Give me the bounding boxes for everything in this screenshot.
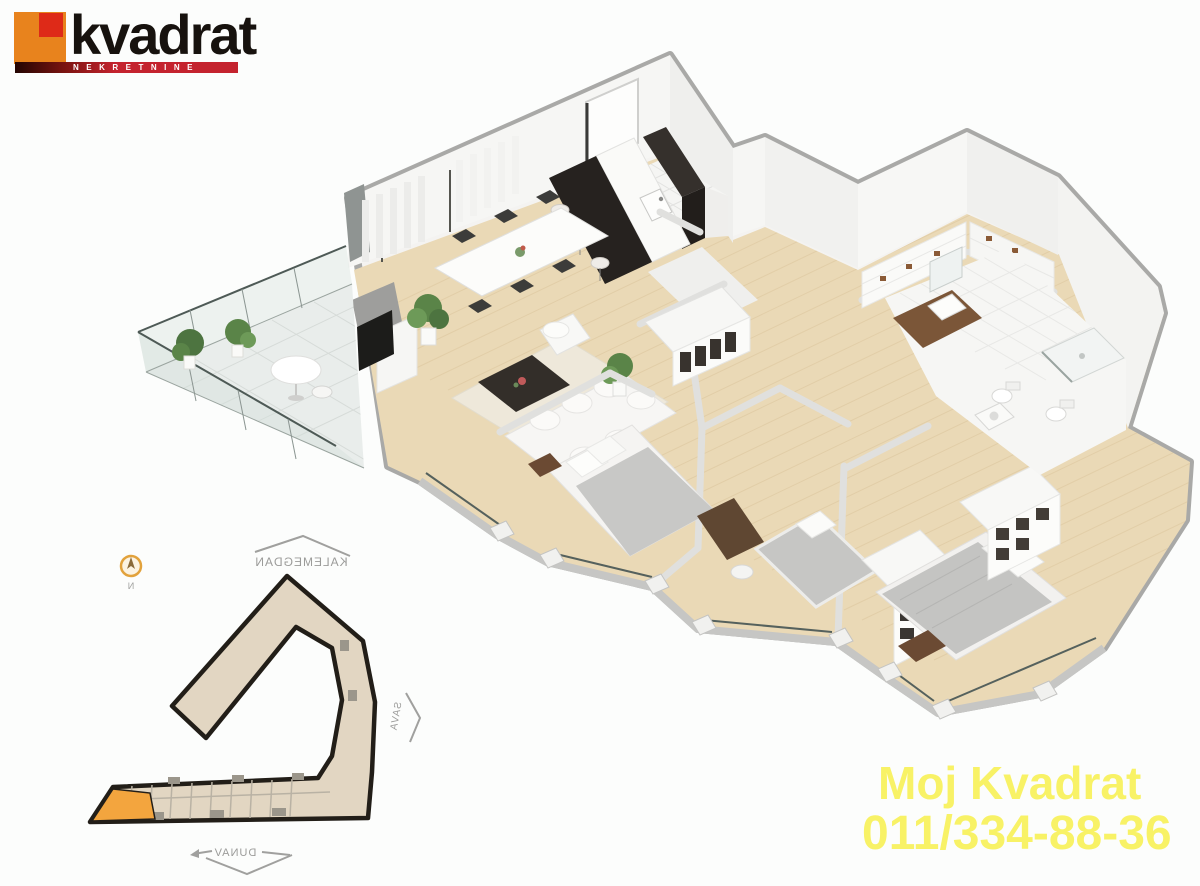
kvadrat-logo: kvadrat NEKRETNINE xyxy=(14,10,254,76)
logo-red-square-icon xyxy=(39,13,63,37)
brand-tagline-banner: NEKRETNINE xyxy=(15,62,238,73)
label-dunav: DUNAV xyxy=(190,847,292,874)
svg-text:KALEMEGDAN: KALEMEGDAN xyxy=(254,555,347,569)
real-estate-listing-image: N KALEMEGDAN SAVA DUNAV xyxy=(0,0,1200,886)
contact-name: Moj Kvadrat xyxy=(878,760,1172,806)
floor-plan-render: N KALEMEGDAN SAVA DUNAV xyxy=(0,0,1200,886)
compass-letter: N xyxy=(128,581,135,591)
terrace-chair xyxy=(312,386,332,398)
label-kalemegdan: KALEMEGDAN xyxy=(254,536,350,569)
svg-text:DUNAV: DUNAV xyxy=(214,847,257,859)
contact-block: Moj Kvadrat 011/334-88-36 xyxy=(862,760,1172,858)
desk-chair xyxy=(731,565,753,579)
logo-orange-square-icon xyxy=(14,12,66,64)
flower xyxy=(521,246,526,251)
brand-tagline: NEKRETNINE xyxy=(73,63,200,72)
compass-icon: N xyxy=(121,556,141,591)
contact-phone: 011/334-88-36 xyxy=(862,810,1172,858)
site-map: N KALEMEGDAN SAVA DUNAV xyxy=(90,536,420,874)
label-sava: SAVA xyxy=(389,693,420,742)
brand-wordmark: kvadrat xyxy=(70,2,255,67)
svg-text:SAVA: SAVA xyxy=(389,701,405,732)
